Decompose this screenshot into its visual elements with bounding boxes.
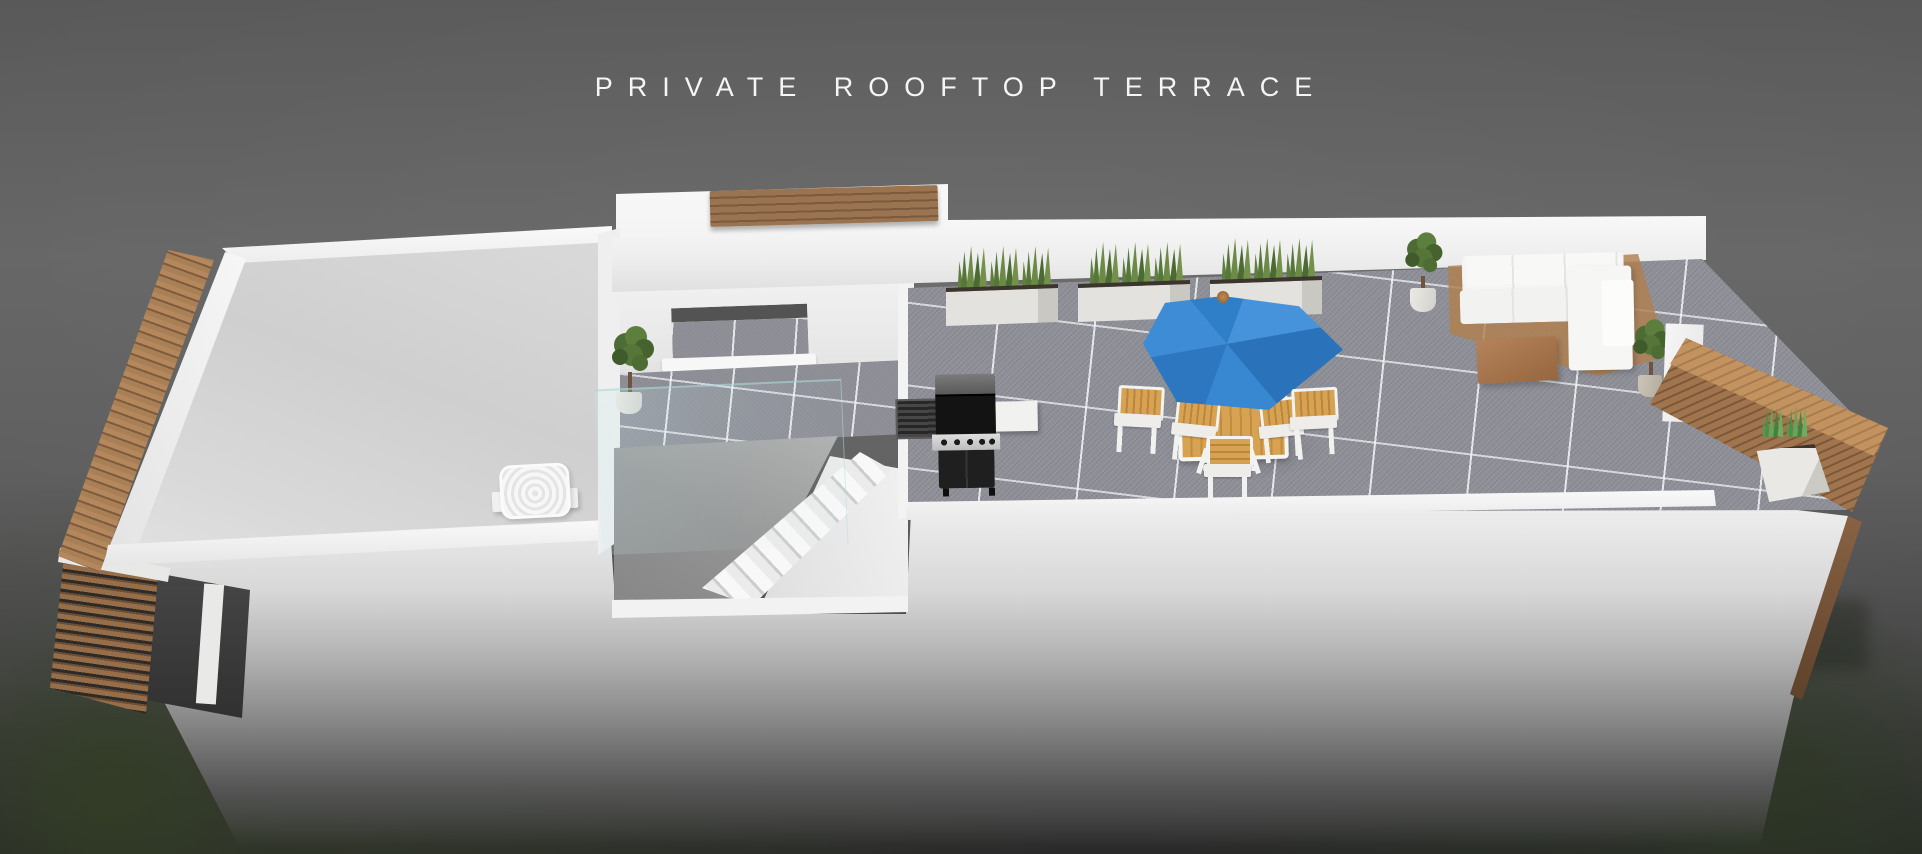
snake-plants-2 xyxy=(1082,242,1192,286)
page-title: PRIVATE ROOFTOP TERRACE xyxy=(0,72,1922,103)
corner-planter-box xyxy=(1752,444,1830,502)
stair-glass-balustrade xyxy=(594,379,848,556)
planter-box-body xyxy=(946,284,1058,326)
roof-vent-dome xyxy=(499,462,572,520)
grill-leg-right xyxy=(989,488,995,496)
umbrella-finial xyxy=(1217,291,1229,303)
planter-box-1 xyxy=(946,246,1064,322)
grill-lid-underside xyxy=(935,374,995,395)
grill-cabinet xyxy=(938,450,995,489)
grill-leg-left xyxy=(943,488,949,496)
grill-firebox xyxy=(935,394,996,437)
chair-legs xyxy=(1116,426,1156,454)
bbq-grill xyxy=(895,371,1047,500)
dining-chair-right xyxy=(1288,387,1340,461)
chair-legs xyxy=(1294,428,1334,456)
stairwell-potted-tree-crown xyxy=(606,318,658,376)
chair-seat xyxy=(1204,464,1251,477)
snake-plants-1 xyxy=(950,246,1060,290)
snake-plants-3 xyxy=(1214,238,1324,282)
parapet-bench-wood xyxy=(710,185,939,227)
grill-control-panel xyxy=(932,433,1000,450)
dining-chair-left xyxy=(1112,385,1164,459)
corner-planter xyxy=(1748,394,1844,506)
grill-side-shelf-left xyxy=(895,399,940,440)
potted-tree-1-crown xyxy=(1400,222,1446,280)
lounge-coffee-table xyxy=(1476,336,1558,384)
render-canvas: PRIVATE ROOFTOP TERRACE xyxy=(0,0,1922,854)
potted-tree-1-pot xyxy=(1410,288,1436,312)
corner-snake-plants xyxy=(1754,394,1826,448)
grill-side-shelf-right xyxy=(995,401,1038,432)
chair-legs xyxy=(1208,477,1247,503)
dining-chair-front xyxy=(1204,436,1252,508)
